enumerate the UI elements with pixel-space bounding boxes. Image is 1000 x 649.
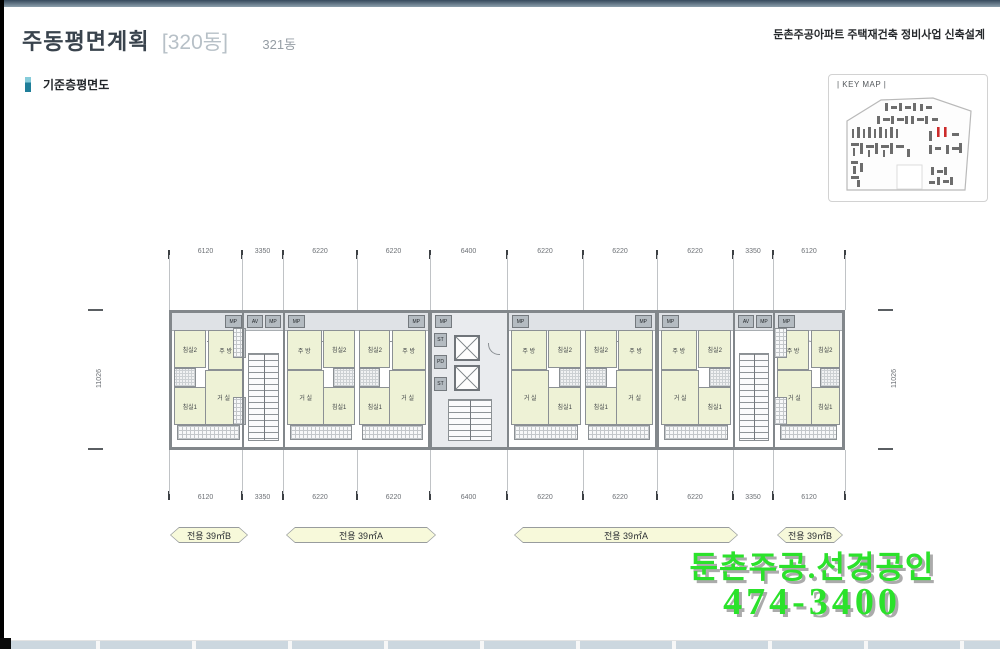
dim-extension-line: [430, 450, 431, 494]
room-bed2: 침실2: [548, 330, 581, 368]
room-bath: [585, 368, 607, 387]
dimension-label: 6120: [184, 248, 228, 255]
dim-extension-line: [357, 450, 358, 494]
corner-mark: [0, 638, 11, 649]
room-kitchen: 주 방: [287, 330, 322, 370]
mp-box: MP: [662, 315, 679, 328]
building-outline: MP주 방거 실침실2침실1AVMPMP주 방거 실침실2침실1MP주 방거 실…: [169, 310, 845, 450]
dimension-label: 6220: [372, 248, 416, 255]
balcony: [362, 425, 423, 440]
mp-box: MP: [288, 315, 305, 328]
area-banner-39B-right: 전용 39㎡B: [777, 527, 843, 543]
realtor-watermark: 둔촌주공.선경공인 474-3400: [632, 552, 992, 621]
core-stairwell: [448, 399, 492, 441]
project-name-text: 둔촌주공아파트 주택재건축 정비사업 신축설계: [773, 26, 985, 42]
dim-extension-line: [733, 255, 734, 310]
dimension-label: 6220: [598, 494, 642, 501]
dim-extension-line: [773, 450, 774, 494]
st-box: ST: [434, 377, 447, 391]
dimension-label: 3350: [241, 494, 285, 501]
dimension-label: 6120: [787, 494, 831, 501]
watermark-name: 둔촌주공.선경공인: [632, 552, 992, 583]
end-balcony-bottom: [774, 397, 787, 425]
balcony: [588, 425, 650, 440]
tab-321[interactable]: 321동: [262, 37, 296, 52]
section-header: 기준층평면도: [25, 76, 109, 93]
dim-extension-line: [773, 255, 774, 310]
dim-tick: [88, 309, 103, 311]
room-bed1: 침실1: [323, 387, 355, 425]
dim-extension-line: [583, 255, 584, 310]
watermark-phone: 474-3400: [632, 583, 992, 621]
dim-extension-line: [357, 255, 358, 310]
dim-extension-line: [507, 255, 508, 310]
dim-extension-line: [845, 255, 846, 310]
mp-box: MP: [265, 315, 281, 328]
dimension-label: 6220: [298, 494, 342, 501]
room-bath: [359, 368, 380, 387]
dim-extension-line: [657, 450, 658, 494]
unit-type-b: MP주 방거 실침실2침실1: [172, 313, 245, 447]
key-map-site-plan: [833, 91, 983, 197]
dimension-label: 3350: [731, 248, 775, 255]
room-bath: [820, 368, 840, 387]
dimension-label: 6400: [447, 494, 491, 501]
left-edge-bar: [0, 0, 4, 649]
dimension-label: 6220: [673, 494, 717, 501]
dimension-label: 6220: [598, 248, 642, 255]
room-bed1: 침실1: [548, 387, 581, 425]
unit-type-a: MP주 방거 실침실2침실1: [357, 313, 430, 447]
room-bed1: 침실1: [585, 387, 617, 425]
room-kitchen: 주 방: [511, 330, 547, 370]
unit-type-a: MP주 방거 실침실2침실1: [583, 313, 657, 447]
section-bullet-icon: [25, 77, 31, 92]
dim-extension-line: [242, 255, 243, 310]
unit-type-b: MP주 방거 실침실2침실1: [773, 313, 842, 447]
balcony: [780, 425, 837, 440]
mp-box: MP: [435, 315, 452, 328]
mp-box: MP: [635, 315, 652, 328]
room-bath: [559, 368, 581, 387]
dimension-label-right: 11026: [891, 369, 898, 388]
mp-box: MP: [756, 315, 772, 328]
room-living: 거 실: [389, 370, 426, 425]
room-bath: [174, 368, 196, 387]
bottom-taskbar-strip: [4, 640, 1000, 649]
dim-extension-line: [845, 450, 846, 494]
dimension-label: 3350: [731, 494, 775, 501]
page-title-block: [320동]: [162, 31, 228, 54]
dimension-label: 6120: [184, 494, 228, 501]
pd-box: PD: [434, 355, 447, 369]
room-living: 거 실: [661, 370, 699, 425]
dimension-label: 6220: [523, 494, 567, 501]
dim-extension-line: [169, 255, 170, 310]
room-bed2: 침실2: [323, 330, 355, 368]
room-bed2: 침실2: [585, 330, 617, 368]
dimension-label: 6120: [787, 248, 831, 255]
mp-box: MP: [225, 315, 242, 328]
room-living: 거 실: [287, 370, 324, 425]
stairwell: [248, 353, 279, 441]
unit-type-a: MP주 방거 실침실2침실1: [507, 313, 583, 447]
elevator-shaft: [454, 335, 480, 361]
end-balcony-top: [774, 328, 787, 358]
mp-box: MP: [778, 315, 795, 328]
title-bar: 주동평면계획 [320동] 321동: [22, 24, 296, 56]
room-kitchen: 주 방: [661, 330, 697, 370]
room-bath: [709, 368, 731, 387]
dim-extension-line: [733, 450, 734, 494]
dim-extension-line: [430, 255, 431, 310]
balcony: [290, 425, 352, 440]
floor-plan: MP주 방거 실침실2침실1AVMPMP주 방거 실침실2침실1MP주 방거 실…: [160, 240, 860, 540]
room-living: 거 실: [616, 370, 653, 425]
page-title: 주동평면계획: [22, 29, 149, 54]
room-bed2: 침실2: [174, 330, 206, 368]
dim-extension-line: [242, 450, 243, 494]
elevator-shaft: [454, 365, 480, 391]
dim-extension-line: [507, 450, 508, 494]
room-bed2: 침실2: [359, 330, 390, 368]
balcony: [514, 425, 578, 440]
room-bed2: 침실2: [811, 330, 840, 368]
room-bed1: 침실1: [811, 387, 840, 425]
area-banner-39A-right: 전용 39㎡A: [514, 527, 738, 543]
dimension-label: 6400: [447, 248, 491, 255]
dimension-label-left: 11026: [96, 369, 103, 388]
stair-bay: AVMP: [733, 313, 773, 447]
dimension-label: 6220: [523, 248, 567, 255]
room-bath: [333, 368, 355, 387]
st-box: ST: [434, 333, 447, 347]
dim-tick: [878, 448, 893, 450]
room-bed2: 침실2: [698, 330, 731, 368]
dimension-label: 3350: [241, 248, 285, 255]
dim-extension-line: [283, 255, 284, 310]
key-map-panel: | KEY MAP |: [828, 74, 988, 202]
area-banner-39B-left: 전용 39㎡B: [170, 527, 248, 543]
dim-extension-line: [657, 255, 658, 310]
mp-box: MP: [408, 315, 425, 328]
unit-type-a: MP주 방거 실침실2침실1: [657, 313, 733, 447]
dim-extension-line: [583, 450, 584, 494]
top-accent-bar: [0, 0, 1000, 7]
room-bed1: 침실1: [698, 387, 731, 425]
dim-tick: [88, 448, 103, 450]
room-kitchen: 주 방: [618, 330, 653, 370]
stair-bay: AVMP: [242, 313, 283, 447]
unit-type-a: MP주 방거 실침실2침실1: [283, 313, 357, 447]
section-label: 기준층평면도: [43, 76, 109, 93]
area-banner-39A-left: 전용 39㎡A: [286, 527, 436, 543]
stairwell: [739, 353, 769, 441]
mp-box: MP: [512, 315, 529, 328]
room-kitchen: 주 방: [392, 330, 426, 370]
room-bed1: 침실1: [359, 387, 390, 425]
dim-tick: [878, 309, 893, 311]
room-bed1: 침실1: [174, 387, 206, 425]
dimension-label: 6220: [298, 248, 342, 255]
dim-extension-line: [283, 450, 284, 494]
av-box: AV: [738, 315, 754, 328]
page: 주동평면계획 [320동] 321동 둔촌주공아파트 주택재건축 정비사업 신축…: [0, 0, 1000, 649]
room-living: 거 실: [511, 370, 549, 425]
dimension-label: 6220: [372, 494, 416, 501]
dim-extension-line: [169, 450, 170, 494]
av-box: AV: [247, 315, 263, 328]
elevator-core: MPSTPDST: [430, 313, 507, 447]
balcony: [664, 425, 728, 440]
dimension-label: 6220: [673, 248, 717, 255]
balcony: [177, 425, 240, 440]
key-map-label: | KEY MAP |: [837, 80, 886, 89]
